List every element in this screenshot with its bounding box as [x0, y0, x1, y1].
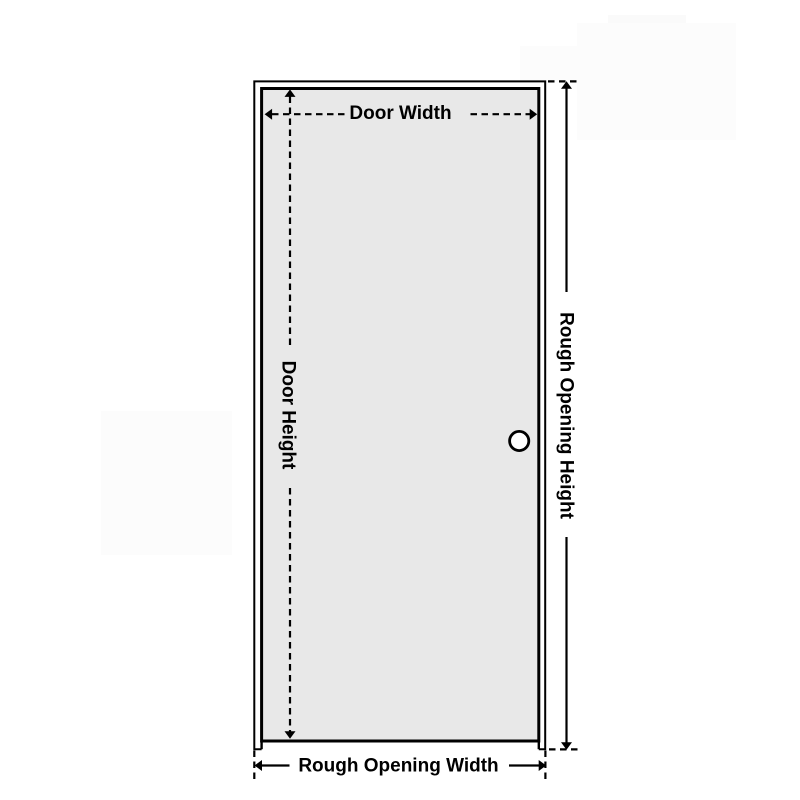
svg-text:Door Height: Door Height	[278, 361, 299, 470]
svg-text:Rough Opening Height: Rough Opening Height	[556, 312, 577, 520]
svg-text:Rough Opening Width: Rough Opening Width	[298, 756, 498, 777]
svg-text:Door Width: Door Width	[349, 103, 451, 124]
